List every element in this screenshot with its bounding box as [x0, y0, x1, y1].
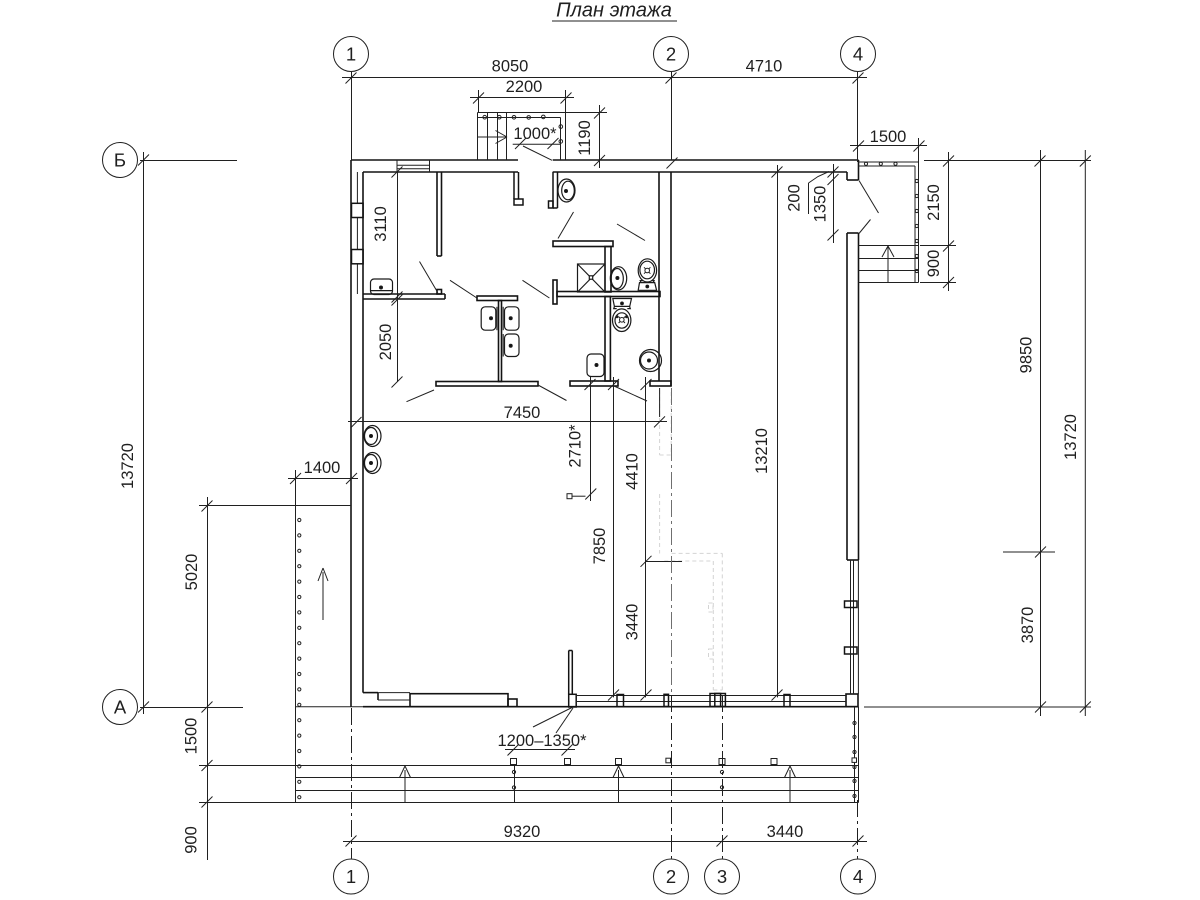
svg-text:9850: 9850: [1018, 337, 1036, 374]
svg-text:3: 3: [717, 866, 727, 887]
svg-text:2200: 2200: [506, 78, 543, 96]
svg-text:3440: 3440: [767, 823, 804, 841]
svg-text:5020: 5020: [183, 554, 201, 591]
svg-text:3870: 3870: [1019, 607, 1037, 644]
svg-text:3110: 3110: [372, 206, 390, 241]
svg-text:А: А: [114, 697, 127, 718]
svg-text:2: 2: [666, 44, 676, 65]
svg-text:3440: 3440: [624, 604, 642, 641]
svg-text:4710: 4710: [746, 58, 783, 76]
svg-text:4410: 4410: [624, 453, 642, 490]
svg-text:1200–1350*: 1200–1350*: [497, 732, 587, 750]
svg-text:2710*: 2710*: [567, 424, 585, 468]
svg-text:13720: 13720: [1062, 414, 1080, 460]
svg-text:План этажа: План этажа: [556, 0, 672, 22]
svg-text:2150: 2150: [925, 184, 943, 221]
svg-text:13720: 13720: [119, 443, 137, 489]
svg-text:1500: 1500: [870, 128, 907, 146]
svg-text:4: 4: [853, 44, 863, 65]
svg-text:Б: Б: [114, 150, 126, 171]
svg-text:8050: 8050: [492, 58, 529, 76]
svg-text:1400: 1400: [304, 459, 341, 477]
svg-text:900: 900: [925, 250, 943, 278]
svg-text:13210: 13210: [753, 428, 771, 474]
svg-text:1190: 1190: [576, 120, 594, 155]
svg-text:2: 2: [666, 866, 676, 887]
svg-text:2050: 2050: [377, 324, 395, 361]
svg-text:1350: 1350: [812, 186, 830, 223]
svg-text:1000*: 1000*: [513, 125, 557, 143]
svg-text:7450: 7450: [504, 404, 541, 422]
svg-text:1: 1: [346, 44, 356, 65]
svg-text:200: 200: [786, 184, 804, 212]
svg-text:9320: 9320: [504, 823, 541, 841]
svg-text:900: 900: [183, 826, 201, 854]
svg-text:1: 1: [346, 866, 356, 887]
svg-text:7850: 7850: [591, 528, 609, 565]
svg-text:1500: 1500: [183, 718, 201, 755]
svg-text:4: 4: [853, 866, 863, 887]
